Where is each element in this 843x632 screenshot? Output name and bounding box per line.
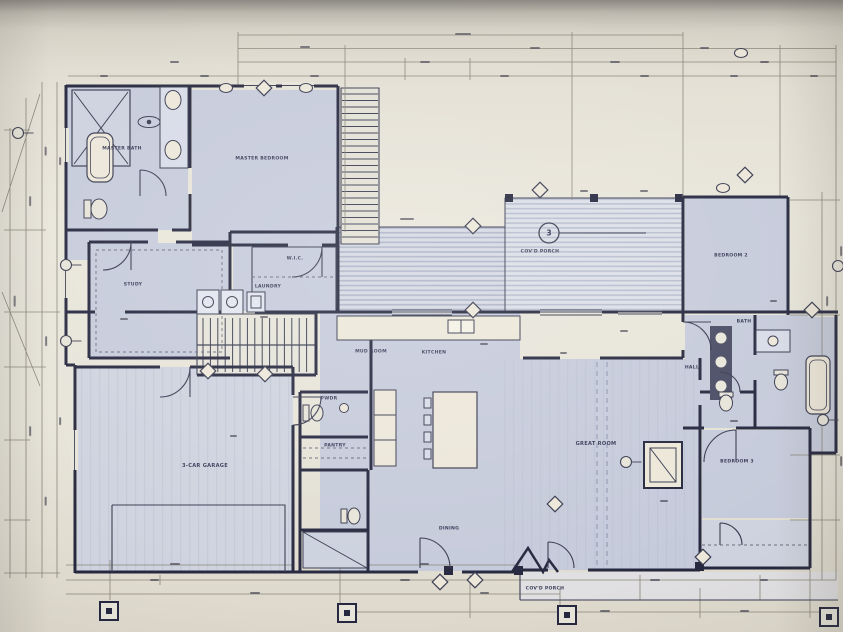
dimension-text-smudge xyxy=(500,75,509,77)
room-label-great-room: GREAT ROOM xyxy=(576,441,617,447)
dimension-text-smudge xyxy=(650,579,660,581)
dimension-text-smudge xyxy=(640,190,648,192)
room-label-powder: PWDR xyxy=(321,397,338,402)
dimension-text-smudge xyxy=(400,218,414,220)
dimension-text-smudge xyxy=(620,330,628,332)
dimension-text-smudge xyxy=(45,336,47,346)
washer-dryer xyxy=(197,290,265,314)
dimension-text-smudge xyxy=(770,300,777,302)
window-tag-diamond-icon xyxy=(532,182,548,198)
dimension-text-smudge xyxy=(760,579,768,581)
keynote-circle-icon xyxy=(833,261,843,272)
dimension-text-smudge xyxy=(150,579,159,581)
dimension-text-smudge xyxy=(300,46,310,48)
room-label-hall: HALL xyxy=(685,366,699,371)
dimension-text-smudge xyxy=(44,497,46,506)
room-label-mud-room: MUD ROOM xyxy=(355,350,387,355)
door-tag-oval-icon xyxy=(735,49,748,58)
master-toilet xyxy=(84,199,107,219)
room-label-wic: W.I.C. xyxy=(287,257,304,262)
dimension-text-smudge xyxy=(420,61,430,63)
porch-column-symbol xyxy=(820,608,838,626)
room-label-covered-porch-lower: COV'D PORCH xyxy=(526,587,565,592)
dimension-text-smudge xyxy=(760,61,769,63)
plan-svg xyxy=(0,0,843,632)
dimension-text-smudge xyxy=(250,592,260,594)
dimension-text-smudge xyxy=(13,296,15,307)
room-label-bedroom-3: BEDROOM 3 xyxy=(720,460,754,465)
keynote-circle-icon xyxy=(61,336,82,347)
window-tag-diamond-icon xyxy=(737,167,753,183)
dimension-text-smudge xyxy=(560,352,567,354)
dimension-text-smudge xyxy=(59,417,61,425)
window-tag-diamond-icon xyxy=(432,574,448,590)
dimension-text-smudge xyxy=(480,592,489,594)
dimension-text-smudge xyxy=(660,500,668,502)
door-tag-oval-icon xyxy=(717,184,730,193)
dimension-text-smudge xyxy=(260,316,268,318)
dimension-text-smudge xyxy=(826,296,828,306)
door-tag-oval-icon xyxy=(220,84,233,93)
door-tag-oval-icon xyxy=(300,84,313,93)
room-label-bedroom-2: BEDROOM 2 xyxy=(714,254,748,259)
media-builtin xyxy=(644,442,682,488)
room-label-laundry: LAUNDRY xyxy=(255,285,281,290)
room-label-kitchen: KITCHEN xyxy=(422,351,447,356)
dimension-text-smudge xyxy=(200,75,209,77)
dimension-text-smudge xyxy=(400,579,410,581)
porch-column-symbol xyxy=(558,606,576,624)
room-label-pantry: PANTRY xyxy=(324,444,346,449)
right-tub xyxy=(806,356,830,414)
dimension-text-smudge xyxy=(455,33,471,35)
dimension-text-smudge xyxy=(840,456,842,466)
dimension-text-smudge xyxy=(530,47,540,49)
keynote-circle-icon xyxy=(61,260,82,271)
dimension-text-smudge xyxy=(59,157,61,165)
dimension-text-smudge xyxy=(29,426,31,436)
window-tag-diamond-icon xyxy=(467,572,483,588)
dimension-text-smudge xyxy=(580,190,588,192)
room-label-dining: DINING xyxy=(439,527,459,532)
dimension-text-smudge xyxy=(310,75,319,77)
room-label-master-bath: MASTER BATH xyxy=(102,147,142,152)
dimension-text-smudge xyxy=(600,610,610,612)
deck-hatch-layer xyxy=(337,194,683,312)
dimension-text-smudge xyxy=(120,318,128,320)
dimension-text-smudge xyxy=(810,75,818,77)
hall-builtin-unit xyxy=(710,326,732,400)
room-label-bath: BATH xyxy=(737,320,752,325)
detail-circle-number: 3 xyxy=(546,229,551,238)
dimension-text-smudge xyxy=(100,75,108,77)
porch-column-symbol xyxy=(338,604,356,622)
dimension-text-smudge xyxy=(700,47,709,49)
porch-column-symbol xyxy=(100,602,118,620)
master-tub xyxy=(87,133,113,182)
dimension-text-smudge xyxy=(840,246,842,256)
room-label-garage: 3-CAR GARAGE xyxy=(182,463,228,469)
dimension-text-smudge xyxy=(230,435,237,437)
dimension-text-smudge xyxy=(480,343,488,345)
dimension-text-smudge xyxy=(640,75,649,77)
room-label-study: STUDY xyxy=(124,283,142,288)
dimension-text-smudge xyxy=(170,61,179,63)
room-label-covered-porch-upper: COV'D PORCH xyxy=(521,250,560,255)
dimension-text-smudge xyxy=(730,420,738,422)
dimension-text-smudge xyxy=(730,75,738,77)
dimension-text-smudge xyxy=(740,610,749,612)
right-vanity xyxy=(756,330,790,352)
dimension-text-smudge xyxy=(44,147,46,156)
dimension-text-smudge xyxy=(420,563,429,565)
floor-plan-photo: MASTER BATH MASTER BEDROOM STUDY LAUNDRY… xyxy=(0,0,843,632)
dimension-text-smudge xyxy=(610,61,620,63)
keynote-circle-icon xyxy=(13,128,34,139)
floor-plan-drawing: MASTER BATH MASTER BEDROOM STUDY LAUNDRY… xyxy=(0,0,843,632)
porch-columns-layer xyxy=(100,602,838,626)
dimension-text-smudge xyxy=(29,196,31,206)
dimension-text-smudge xyxy=(170,563,180,565)
room-label-master-bedroom: MASTER BEDROOM xyxy=(235,157,288,162)
master-vanity xyxy=(160,87,188,168)
